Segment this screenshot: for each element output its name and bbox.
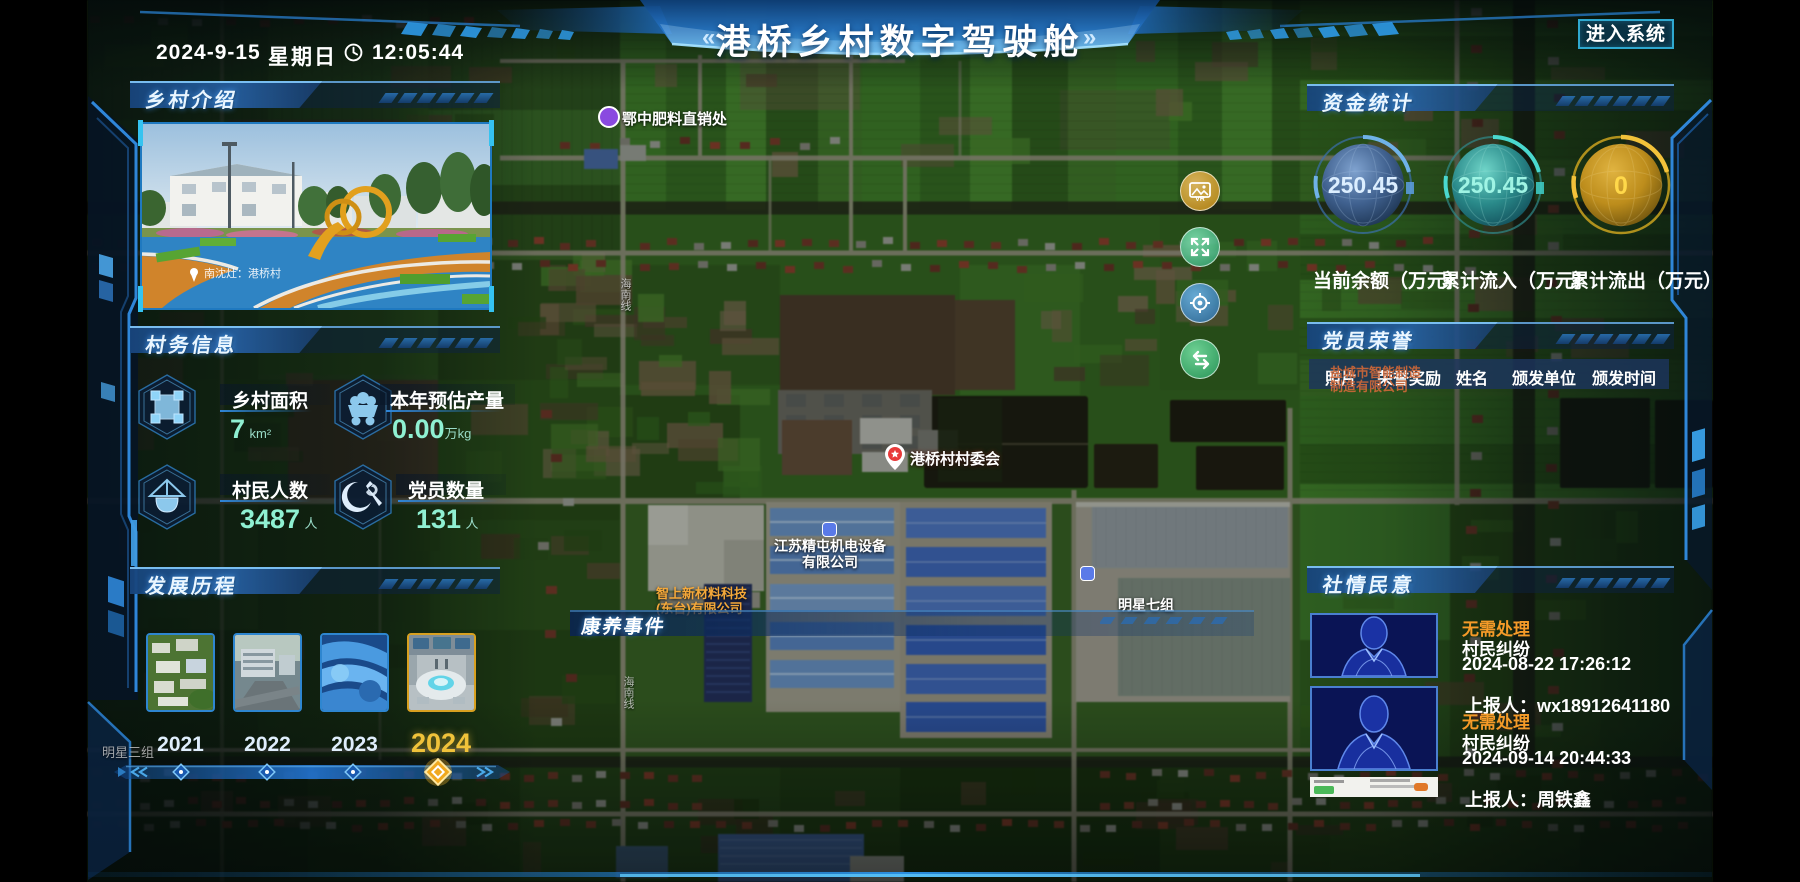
svg-text:VR: VR	[1195, 196, 1205, 202]
svg-text:0: 0	[1614, 172, 1628, 200]
svg-text:250.45: 250.45	[1458, 172, 1529, 198]
svg-text:南沈灶：港桥村: 南沈灶：港桥村	[204, 266, 281, 280]
svg-text:250.45: 250.45	[1328, 172, 1399, 198]
